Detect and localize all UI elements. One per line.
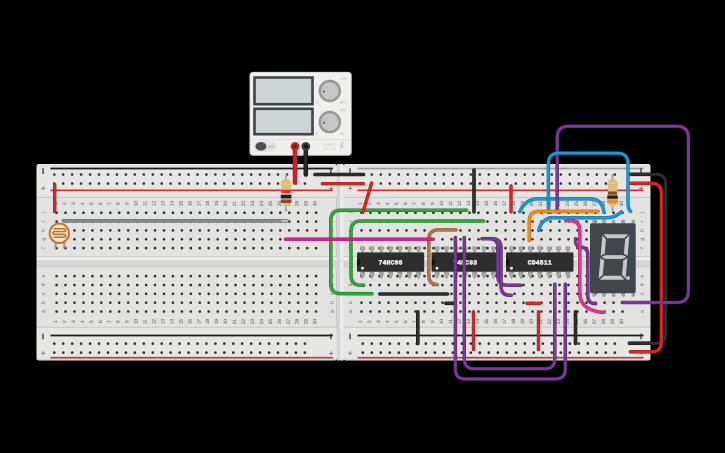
svg-text:1: 1: [53, 320, 59, 323]
svg-text:3: 3: [376, 202, 382, 205]
svg-text:2A: 2A: [340, 132, 344, 136]
svg-text:28: 28: [601, 319, 607, 325]
svg-text:27: 27: [592, 319, 598, 325]
svg-text:16: 16: [493, 201, 499, 207]
svg-text:26: 26: [583, 201, 589, 207]
svg-text:2: 2: [62, 202, 68, 205]
svg-text:e: e: [640, 274, 646, 277]
svg-text:24: 24: [259, 201, 265, 207]
svg-text:15: 15: [178, 201, 184, 207]
svg-text:28: 28: [295, 201, 301, 207]
svg-text:+: +: [636, 186, 646, 191]
svg-text:30: 30: [619, 319, 625, 325]
svg-text:6: 6: [403, 202, 409, 205]
svg-text:5: 5: [89, 202, 95, 205]
svg-text:i: i: [640, 221, 646, 222]
svg-text:16: 16: [187, 319, 193, 325]
svg-text:11: 11: [143, 201, 149, 206]
svg-text:24: 24: [565, 201, 571, 207]
svg-text:h: h: [41, 229, 47, 232]
svg-text:6: 6: [98, 202, 104, 205]
svg-text:25: 25: [268, 319, 274, 325]
svg-text:11: 11: [448, 319, 454, 324]
svg-text:26: 26: [277, 319, 283, 325]
svg-text:30: 30: [619, 201, 625, 207]
svg-text:9: 9: [125, 320, 131, 323]
svg-text:15: 15: [178, 319, 184, 325]
svg-text:j: j: [640, 212, 646, 214]
svg-text:27: 27: [286, 319, 292, 325]
svg-text:29: 29: [304, 201, 310, 207]
svg-text:29: 29: [610, 319, 616, 325]
svg-text:13: 13: [466, 201, 472, 207]
svg-text:11: 11: [143, 319, 149, 324]
svg-text:d: d: [41, 283, 47, 286]
svg-text:8: 8: [116, 202, 122, 205]
svg-text:20: 20: [529, 319, 535, 325]
svg-text:2: 2: [62, 320, 68, 323]
svg-text:19: 19: [214, 201, 220, 207]
svg-text:24: 24: [259, 319, 265, 325]
svg-text:18: 18: [205, 201, 211, 207]
svg-text:9: 9: [430, 202, 436, 205]
svg-text:1: 1: [358, 202, 364, 205]
svg-text:12: 12: [152, 319, 158, 325]
svg-text:i: i: [41, 221, 47, 222]
svg-text:3: 3: [71, 202, 77, 205]
svg-text:h: h: [640, 229, 646, 232]
svg-text:+: +: [326, 186, 336, 191]
svg-text:a: a: [640, 310, 646, 313]
svg-text:23: 23: [250, 319, 256, 325]
svg-text:17: 17: [196, 201, 202, 207]
svg-text:a: a: [41, 310, 47, 313]
svg-text:13: 13: [161, 319, 167, 325]
svg-text:1: 1: [358, 320, 364, 323]
svg-text:e: e: [41, 274, 47, 277]
svg-text:17: 17: [196, 319, 202, 325]
svg-text:7: 7: [107, 202, 113, 205]
svg-text:22: 22: [241, 319, 247, 325]
svg-text:20: 20: [223, 201, 229, 207]
svg-text:+: +: [326, 351, 336, 356]
svg-text:19: 19: [520, 319, 526, 325]
svg-text:10: 10: [134, 319, 140, 325]
svg-text:21: 21: [538, 201, 544, 207]
svg-text:20: 20: [223, 319, 229, 325]
svg-text:8: 8: [116, 320, 122, 323]
svg-text:15: 15: [484, 201, 490, 207]
svg-text:23: 23: [556, 319, 562, 325]
svg-text:23: 23: [250, 201, 256, 207]
svg-text:j: j: [348, 212, 354, 214]
svg-text:b: b: [41, 301, 47, 304]
svg-text:16: 16: [187, 201, 193, 207]
svg-text:+: +: [345, 186, 355, 191]
svg-text:4: 4: [80, 320, 86, 323]
svg-text:6: 6: [98, 320, 104, 323]
svg-text:8: 8: [421, 320, 427, 323]
svg-text:14: 14: [169, 319, 175, 325]
svg-text:7: 7: [107, 320, 113, 323]
svg-text:+: +: [345, 351, 355, 356]
svg-text:b: b: [329, 301, 335, 304]
svg-text:19: 19: [214, 319, 220, 325]
svg-text:15: 15: [484, 319, 490, 325]
svg-text:14: 14: [475, 201, 481, 207]
svg-text:8: 8: [421, 202, 427, 205]
svg-text:29: 29: [304, 319, 310, 325]
svg-text:17: 17: [502, 201, 508, 207]
svg-text:17: 17: [502, 319, 508, 325]
svg-text:25: 25: [574, 201, 580, 207]
svg-text:+: +: [38, 351, 48, 356]
svg-text:SUPPLY: SUPPLY: [324, 147, 338, 151]
svg-text:18: 18: [511, 319, 517, 325]
svg-text:10: 10: [439, 201, 445, 207]
svg-text:14: 14: [169, 201, 175, 207]
svg-text:4: 4: [385, 202, 391, 205]
svg-text:9: 9: [430, 320, 436, 323]
svg-text:4: 4: [80, 202, 86, 205]
svg-text:+: +: [38, 186, 48, 191]
svg-text:3: 3: [376, 320, 382, 323]
svg-text:30V: 30V: [340, 101, 345, 105]
svg-text:12: 12: [457, 319, 463, 325]
svg-text:5: 5: [89, 320, 95, 323]
svg-text:10: 10: [439, 319, 445, 325]
svg-text:9: 9: [125, 202, 131, 205]
svg-text:11: 11: [448, 201, 454, 206]
svg-text:5: 5: [394, 202, 400, 205]
svg-text:30: 30: [313, 201, 319, 207]
svg-text:12: 12: [152, 201, 158, 207]
svg-text:a: a: [348, 310, 354, 313]
svg-text:30: 30: [313, 319, 319, 325]
svg-text:16: 16: [493, 319, 499, 325]
svg-text:4: 4: [385, 320, 391, 323]
svg-text:3: 3: [71, 320, 77, 323]
svg-text:0-30: 0-30: [341, 77, 347, 81]
svg-text:a: a: [329, 310, 335, 313]
svg-text:18: 18: [205, 319, 211, 325]
svg-text:g: g: [640, 238, 646, 241]
svg-text:12: 12: [457, 201, 463, 207]
svg-text:21: 21: [232, 319, 238, 325]
svg-text:j: j: [41, 212, 47, 214]
svg-text:7: 7: [412, 202, 418, 205]
svg-text:13: 13: [466, 319, 472, 325]
svg-text:13: 13: [161, 201, 167, 207]
svg-text:25: 25: [268, 201, 274, 207]
svg-text:b: b: [348, 301, 354, 304]
svg-text:26: 26: [583, 319, 589, 325]
svg-text:14: 14: [475, 319, 481, 325]
svg-text:5: 5: [394, 320, 400, 323]
svg-text:28: 28: [295, 319, 301, 325]
svg-text:22: 22: [547, 319, 553, 325]
svg-text:d: d: [640, 283, 646, 286]
svg-text:2: 2: [367, 320, 373, 323]
svg-text:g: g: [41, 238, 47, 241]
svg-text:74HC08: 74HC08: [378, 260, 402, 267]
svg-text:10: 10: [134, 201, 140, 207]
svg-text:2: 2: [367, 202, 373, 205]
svg-text:0-2: 0-2: [341, 108, 346, 112]
svg-text:6: 6: [403, 320, 409, 323]
svg-text:22: 22: [241, 201, 247, 207]
svg-text:CD4511: CD4511: [528, 260, 552, 267]
svg-text:21: 21: [232, 201, 238, 207]
svg-text:OFF: OFF: [268, 145, 274, 149]
